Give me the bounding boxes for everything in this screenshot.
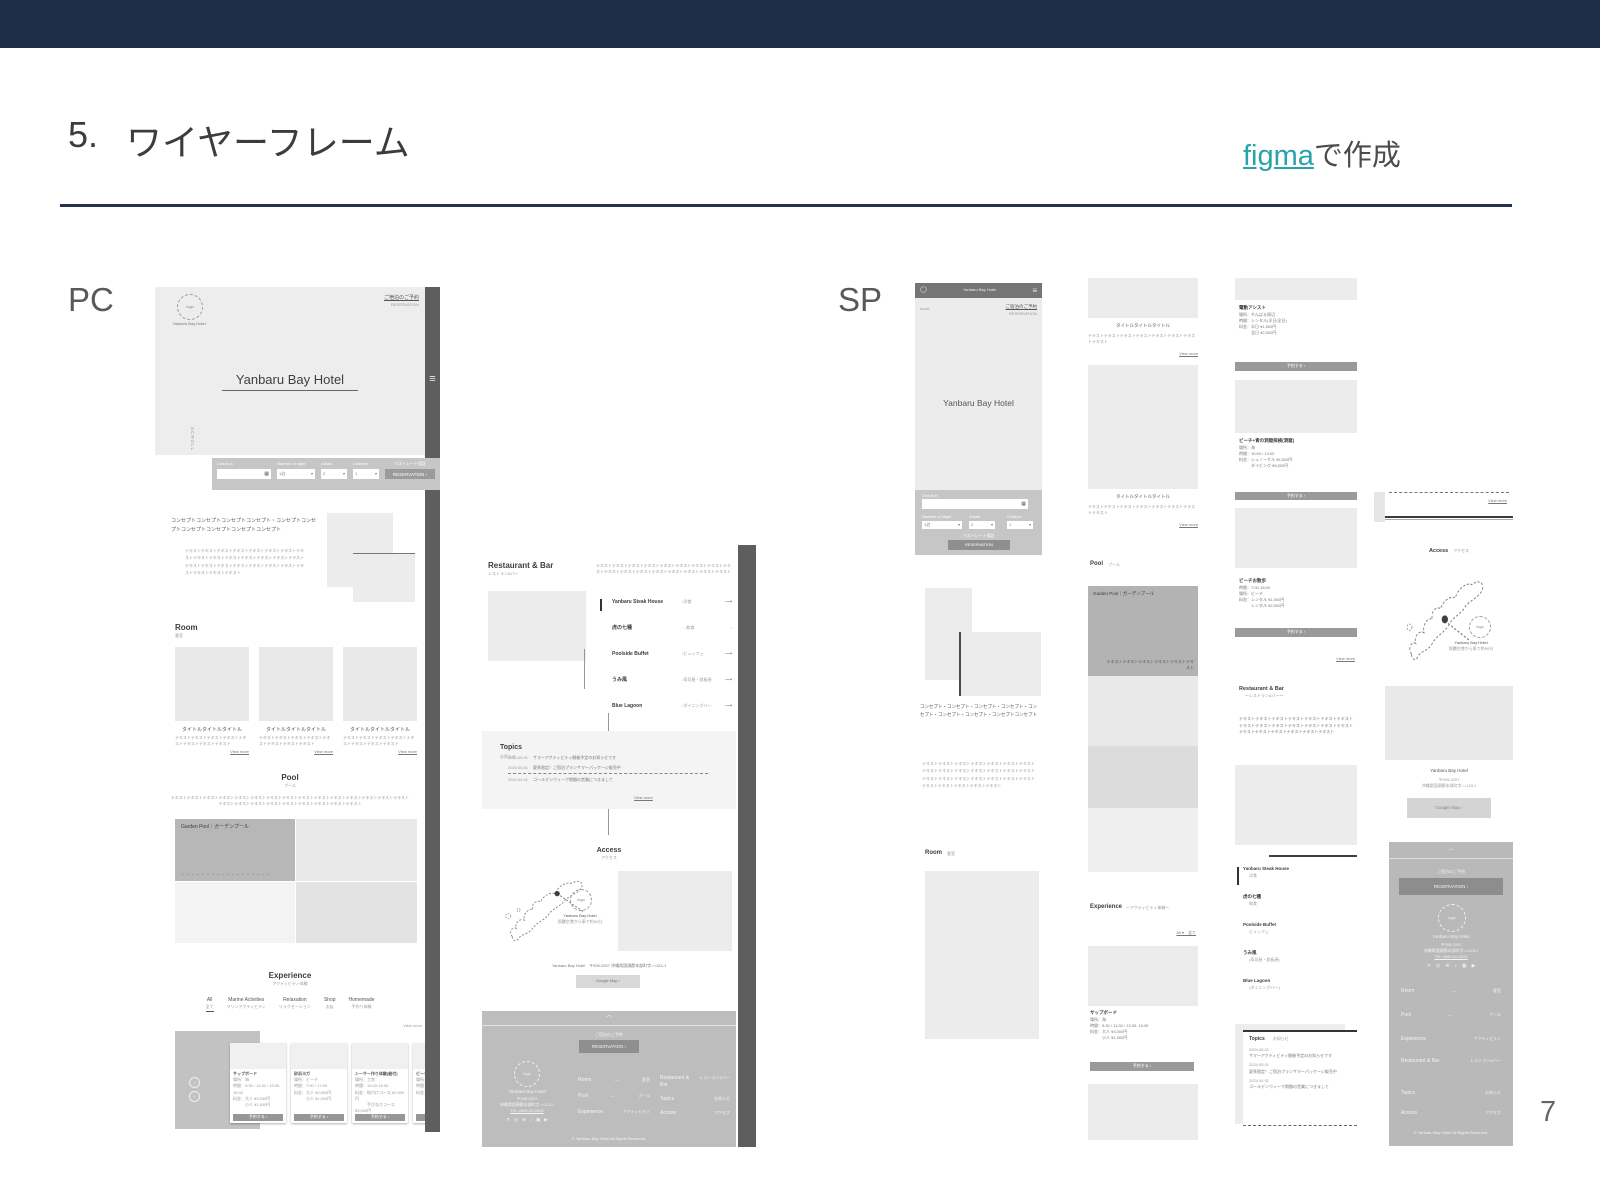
sp-card-title: サップボード [1090, 1010, 1196, 1017]
tab-shop[interactable]: Shop お店 [324, 997, 336, 1012]
experience-section-title: Experience アクティビティ体験 [155, 971, 425, 987]
map-logo-icon: logo [570, 889, 592, 911]
sp-restaurant-list-item[interactable]: うみ風 (寿司屋・鉄板焼) [1243, 950, 1355, 963]
hero-hotel-name-text: Yanbaru Bay Hotel [222, 372, 358, 391]
sp-footer-nav-en: Experience [1401, 1036, 1426, 1043]
sp-footer-nav-dash: — [1452, 988, 1456, 994]
hero-link-reserve[interactable]: ご宿泊のご予約 [384, 295, 419, 302]
access-title-ja: アクセス [480, 855, 738, 861]
pc-footer: ︿ ご宿泊のご予約 RESERVATION › logo Yanbaru Bay… [482, 1011, 736, 1147]
pc-hero: logo Yanbaru Bay Hotel ご宿泊のご予約 RESERVATI… [155, 287, 425, 455]
footer-nav-topics[interactable]: Topics お知らせ [660, 1096, 730, 1103]
sp-restaurant-section-title: Restaurant & Bar ～レストラン&バー～ [1239, 686, 1284, 699]
carousel-next-button[interactable]: › [189, 1077, 200, 1088]
room-card-image [259, 647, 333, 721]
footer-nav-ja: お知らせ [714, 1096, 730, 1102]
footer-hotel-name: Yanbaru Bay Hotel [490, 1089, 564, 1096]
pool-gallery: Garden Pool｜ガーデンプール ・・・・・・・・・・・・・・・・・・ [175, 819, 417, 943]
footer-nav-room[interactable]: Room — 客室 [578, 1077, 650, 1084]
caret-down-icon: ▾ [958, 522, 960, 528]
topics-item[interactable]: 2024.04.01 ゴールデンウィーク期間の営業につきまして [508, 777, 708, 783]
topics-band: Topics お知らせ 2024.05.01 サマーアクティビティ開催予定のお知… [482, 731, 736, 809]
reservation-button[interactable]: RESERVATION › [385, 469, 435, 479]
x-icon[interactable]: ✕ [1427, 963, 1431, 970]
adults-value: 2 [323, 471, 325, 477]
arrow-right-icon: ⟶ [725, 703, 732, 710]
prev-icon: ‹ [194, 1094, 196, 1100]
sp-reserve-button[interactable]: 予約する › [1235, 362, 1357, 371]
sp-card-title: 電動アシスト [1239, 305, 1353, 312]
sp-topics-item[interactable]: 2024.05.01 サマーアクティビティ開催予定のお知らせです [1243, 1043, 1357, 1059]
sp-reserve-button[interactable]: 予約する › [1235, 628, 1357, 637]
hero-hotel-name: Yanbaru Bay Hotel [155, 371, 425, 391]
tab-label-en: Relaxation [279, 997, 311, 1004]
pool-section-title: Pool プール [155, 773, 425, 789]
sp-restaurant-name: Yanbaru Steak House [1243, 866, 1355, 873]
sp-map-caption: Yanbaru Bay Hotel 那覇空港から車で約90分 [1431, 640, 1511, 652]
sp-access-title-ja: アクセス [1453, 548, 1469, 554]
checkin-input[interactable]: ▦ [217, 469, 271, 479]
experience-card[interactable]: 砂浜ヨガ 場所：ビーチ 時間：7:00 / 17:00 料金：大人 ¥2,000… [291, 1043, 347, 1123]
map-logo-icon: logo [1469, 616, 1491, 638]
sp-topics-text: 夏季限定！ご宿泊プランサマーパッケージ販売中 [1249, 1069, 1351, 1075]
credit-suffix: で作成 [1314, 140, 1401, 172]
okinawa-map-icon [498, 869, 600, 955]
instagram-icon[interactable]: ◎ [1436, 963, 1440, 970]
footer-nav-en: Room [578, 1077, 591, 1084]
experience-card-button[interactable]: 予約する › [294, 1114, 344, 1121]
restaurant-tick [600, 599, 602, 611]
sp-wireframe-col3: 電動アシスト 場所：やんばる周辺 時間：レンタル(半日/全日) 料金：半日 ¥1… [1235, 278, 1357, 1130]
sp-restaurant-title-ja: ～レストラン&バー～ [1245, 693, 1284, 699]
sp-experience-section-title: Experience ～アクティビティ体験～ [1090, 904, 1169, 912]
view-more-link[interactable]: View more [175, 749, 249, 755]
view-more-link[interactable]: View more [1088, 351, 1198, 357]
sp-topics-section-title: Topics お知らせ [1243, 1032, 1357, 1043]
tab-all[interactable]: All 全て [206, 997, 214, 1012]
topics-list: 2024.05.01 サマーアクティビティ開催予定のお知らせです 2024.05… [508, 755, 708, 784]
footer-nav-left: Room — 客室 Pool — プール Experience アクティビティ [578, 1077, 650, 1116]
sp-footer-tel[interactable]: TEL.0980-00-0000 [1389, 954, 1513, 960]
experience-view-more[interactable]: View more [403, 1023, 422, 1029]
footer-nav-experience[interactable]: Experience アクティビティ [578, 1109, 650, 1116]
view-more-link[interactable]: View more [1488, 498, 1507, 504]
tab-label-ja: マリンアクティビティ [227, 1004, 266, 1010]
adults-select[interactable]: 2 ▾ [321, 469, 347, 479]
sp-restaurant-name: 虎の七種 [1243, 894, 1355, 901]
experience-card[interactable]: サップボード 場所：海 時間：9:30 / 11:30 / 13:30, 15:… [230, 1043, 286, 1123]
line-icon[interactable]: ▣ [1462, 963, 1467, 970]
experience-tabs: All 全て Marine Activities マリンアクティビティ Rela… [155, 997, 425, 1012]
logo-text: logo [186, 304, 194, 310]
pool-gallery-garden: Garden Pool｜ガーデンプール ・・・・・・・・・・・・・・・・・・ [175, 819, 295, 881]
topics-text: 夏季限定！ご宿泊プランサマーパッケージ販売中 [533, 765, 621, 771]
sp-footer-socials: ✕ ◎ ⊕ ♪ ▣ ▶ [1389, 963, 1513, 970]
map-logo-text: logo [1476, 624, 1484, 630]
nights-value: 1泊 [279, 471, 285, 477]
topics-view-more[interactable]: View more [634, 795, 653, 801]
restaurant-list-row[interactable]: Poolside Buffet /ビュッフェ ⟶ [612, 651, 732, 658]
experience-card-image [230, 1043, 286, 1069]
pool-gallery-image [296, 819, 417, 881]
experience-title-en: Experience [155, 971, 425, 981]
footer-nav-ja: 客室 [642, 1077, 650, 1083]
sp-experience-image [1235, 508, 1357, 568]
sp-topics-title-ja: お知らせ [1273, 1036, 1289, 1042]
sp-footer-nav-ja: レストラン&バー [1470, 1058, 1501, 1064]
sp-pool-title-en: Pool [1090, 561, 1103, 569]
footer-divider [482, 1025, 736, 1026]
restaurant-list-row[interactable]: Blue Lagoon /ダイニングバー ⟶ [612, 703, 732, 710]
experience-card-button[interactable]: 予約する › [355, 1114, 405, 1121]
footer-reservation-button[interactable]: RESERVATION › [579, 1040, 639, 1053]
restaurant-category: /ビュッフェ [682, 651, 716, 657]
footer-tel[interactable]: TEL.0980-00-0000 [490, 1108, 564, 1114]
restaurant-section-title: Restaurant & Bar レストラン&バー [488, 561, 553, 577]
concept-image-2 [353, 553, 415, 602]
sp-restaurant-image [1235, 765, 1357, 845]
topics-text: サマーアクティビティ開催予定のお知らせです [533, 755, 616, 761]
restaurant-list-row[interactable]: Yanbaru Steak House /洋食 ⟶ [612, 599, 732, 606]
pool-gallery-image [175, 882, 295, 943]
sp-garden-pool-text: テキストテキストテキストテキストテキストテキスト [1106, 659, 1194, 671]
tab-label-ja: リラクゼーション [279, 1004, 311, 1010]
sp-card-line: ダイビング ¥5,500円 [1239, 463, 1353, 469]
booking-nights-group: Number of night 1泊 ▾ [277, 461, 315, 487]
sp-wireframe-col1: ◯ Yanbaru Bay Hotel ≡ scroll ご宿泊のご予約 RES… [915, 283, 1042, 1048]
sp-footer-nav-access[interactable]: Access アクセス [1401, 1110, 1501, 1117]
sp-pool-image [1088, 676, 1198, 746]
room-card-text: テキストテキストテキストテキストテキストテキストテキストテキスト [175, 735, 249, 747]
hero-links: ご宿泊のご予約 RESERVATION [384, 295, 419, 308]
section-divider-line [608, 713, 609, 731]
sp-restaurant-divider [1269, 855, 1357, 857]
map-logo-text: logo [577, 897, 585, 903]
sp-footer-nav-ja: 客室 [1493, 988, 1501, 994]
sp-concept-body: テキストテキストテキストテキストテキストテキストテキストテキストテキストテキスト… [922, 760, 1035, 790]
sp-restaurant-list-item[interactable]: 虎の七種 和食 [1243, 894, 1355, 907]
sp-footer-nav-topics[interactable]: Topics お知らせ [1401, 1090, 1501, 1097]
sp-map-note: 那覇空港から車で約90分 [1431, 646, 1511, 652]
sp-adults-select[interactable]: 2 ▾ [969, 521, 995, 529]
instagram-icon[interactable]: ◎ [514, 1117, 518, 1124]
sp-card-line: 小人 ¥1,500円 [1090, 1035, 1196, 1041]
next-icon: › [194, 1080, 196, 1086]
tiktok-icon[interactable]: ♪ [1454, 963, 1457, 970]
google-map-button[interactable]: Google Map › [576, 975, 640, 988]
sp-restaurant-list-item[interactable]: Blue Lagoon (ダイニングバー) [1243, 978, 1355, 991]
sp-footer-nav-ja: アクセス [1485, 1110, 1501, 1116]
sp-reserve-button[interactable]: 予約する › [1235, 492, 1357, 500]
sp-restaurant-category: (寿司屋・鉄板焼) [1249, 957, 1355, 963]
sp-footer-nav-ja: プール [1489, 1012, 1501, 1018]
restaurant-lead: テキストテキストテキストテキストテキストテキストテキストテキストテキストテキスト… [596, 563, 732, 576]
best-rate-note: ベストレート保証 [385, 461, 435, 467]
sp-experience-title-en: Experience [1090, 904, 1122, 912]
view-more-link[interactable]: View more [1088, 522, 1198, 528]
footer-nav-en: Restaurant & Bar [660, 1075, 698, 1089]
room-card-image [343, 647, 417, 721]
sp-footer-nav-room[interactable]: Room — 客室 [1401, 988, 1501, 995]
sp-card-line: レンタル ¥2,500円 [1239, 603, 1353, 609]
footer-nav-restaurant[interactable]: Restaurant & Bar レストラン&バー [660, 1075, 730, 1089]
sp-footer-copyright: © Yanbaru Bay Hotel All Rights Reserved. [1389, 1130, 1513, 1136]
experience-card-button[interactable]: 予約する › [233, 1114, 283, 1121]
sp-pool-title-ja: プール [1108, 562, 1120, 568]
room-card-title: タイトルタイトルタイトル [259, 727, 333, 734]
calendar-icon[interactable]: ▦ [1021, 501, 1026, 508]
sp-hero-hotel-name: Yanbaru Bay Hotel [915, 398, 1042, 408]
sp-footer: ︿ ご宿泊のご予約 RESERVATION › logo Yanbaru Bay… [1389, 842, 1513, 1146]
experience-card-line: 時間：9:00-18:00 [416, 1083, 425, 1089]
tab-homemade[interactable]: Homemade 手作り体験 [349, 997, 375, 1012]
sp-restaurant-category: 洋食 [1249, 873, 1355, 879]
sp-partial-card: View more [1385, 470, 1513, 522]
map-caption: Yanbaru Bay Hotel 那覇空港から車で約90分 [542, 913, 618, 925]
sp-restaurant-list-item[interactable]: Yanbaru Steak House 洋食 [1243, 866, 1355, 879]
topics-dashed-divider [508, 773, 708, 774]
sp-restaurant-category: 和食 [1249, 901, 1355, 907]
caret-down-icon: ▾ [343, 471, 345, 477]
sp-access-address: 沖縄県国頭郡本部町字○○123-1 [1385, 783, 1513, 789]
sp-footer-nav-ja: アクティビティ [1474, 1036, 1501, 1042]
tab-relaxation[interactable]: Relaxation リラクゼーション [279, 997, 311, 1012]
calendar-icon[interactable]: ▦ [264, 471, 269, 478]
pc-wireframe-page1: ≡ logo Yanbaru Bay Hotel ご宿泊のご予約 RESERVA… [155, 287, 440, 1132]
footer-nav-en: Pool [578, 1093, 588, 1100]
footer-nav-pool[interactable]: Pool — プール [578, 1093, 650, 1100]
tab-label-en: All [206, 997, 214, 1004]
footer-nav-en: Topics [660, 1096, 674, 1103]
sp-footer-nav-ja: お知らせ [1485, 1090, 1501, 1096]
sp-footer-nav-experience[interactable]: Experience アクティビティ [1401, 1036, 1501, 1043]
sp-restaurant-name: Poolside Buffet [1243, 922, 1355, 929]
access-image [618, 871, 732, 951]
scroll-indicator: SCROLL [188, 427, 195, 451]
sp-footer-reservation-button[interactable]: RESERVATION › [1399, 878, 1503, 895]
footer-nav-dash: — [611, 1093, 615, 1099]
sp-footer-nav-dash: — [1448, 1012, 1452, 1018]
sp-footer-nav-pool[interactable]: Pool — プール [1401, 1012, 1501, 1019]
sp-access-title-en: Access [1429, 548, 1448, 555]
sp-experience-card-text: ビーチ+青の洞窟探検(洞窟) 場所：海 時間：10:00 / 13:00 料金：… [1239, 438, 1353, 470]
children-select[interactable]: 1 ▾ [353, 469, 379, 479]
sp-adults-group: Adults 2 ▾ [969, 514, 995, 529]
room-title-ja: 客室 [175, 633, 198, 639]
footer-brand: logo Yanbaru Bay Hotel 〒905-0207 沖縄県国頭郡本… [490, 1061, 564, 1124]
footer-socials: ✕ ◎ ⊕ ♪ ▣ ▶ [490, 1117, 564, 1124]
sp-booking-panel: Check-in ▦ Number of Night 1泊 ▾ Adults 2… [915, 490, 1042, 555]
footer-nav-en: Access [660, 1110, 676, 1117]
section-divider-line [608, 809, 609, 835]
carousel-prev-button[interactable]: ‹ [189, 1091, 200, 1102]
caret-down-icon: ▾ [1029, 522, 1031, 528]
restaurant-image [488, 591, 586, 661]
sp-header-title: Yanbaru Bay Hotel [963, 287, 996, 293]
footer-nav-ja: アクティビティ [623, 1109, 650, 1115]
experience-card-line: 小人 ¥2,000円 [416, 1096, 425, 1102]
sp-footer-nav-en: Access [1401, 1110, 1417, 1117]
sp-children-value: 1 [1009, 522, 1011, 528]
concept-title: コンセプトコンセプトコンセプトコンセプト・コンセプトコンセプトコンセプトコンセプ… [171, 517, 317, 534]
logo-caption: Yanbaru Bay Hotel [159, 321, 219, 327]
sp-wireframe-col2: タイトルタイトルタイトル テキストテキストテキストテキストテキストテキストテキス… [1088, 278, 1198, 1140]
sp-card-title: ビーチ+青の洞窟探検(洞窟) [1239, 438, 1353, 445]
booking-submit-group: ベストレート保証 RESERVATION › [385, 461, 435, 487]
footer-nav-access[interactable]: Access アクセス [660, 1110, 730, 1117]
footer-nav-ja: レストラン&バー [699, 1075, 730, 1081]
sp-restaurant-category: (ダイニングバー) [1249, 985, 1355, 991]
page-number: 7 [1540, 1096, 1556, 1129]
footer-logo-text: logo [523, 1071, 531, 1077]
sp-topics-item[interactable]: 2024.04.01 ゴールデンウィーク期間の営業につきまして [1243, 1075, 1357, 1090]
sp-footer-logo-text: logo [1448, 915, 1456, 921]
sp-hero-link-reservation[interactable]: RESERVATION [1006, 311, 1038, 317]
nights-select[interactable]: 1泊 ▾ [277, 469, 315, 479]
room-card-title: タイトルタイトルタイトル [175, 727, 249, 734]
garden-pool-dots: ・・・・・・・・・・・・・・・・・・ [181, 872, 271, 878]
sp-footer-nav-en: Room [1401, 988, 1414, 995]
sp-hero: scroll ご宿泊のご予約 RESERVATION Yanbaru Bay H… [915, 298, 1042, 490]
sp-nights-group: Number of Night 1泊 ▾ [922, 514, 962, 529]
experience-card-button[interactable]: 予約する › [416, 1114, 425, 1121]
restaurant-name: Yanbaru Steak House [612, 599, 674, 606]
hero-link-reservation[interactable]: RESERVATION [384, 302, 419, 308]
sp-pool-section-title: Pool プール [1090, 561, 1120, 569]
pc-label: PC [68, 281, 114, 319]
line-icon[interactable]: ▣ [536, 1117, 540, 1124]
sp-restaurant-list-item[interactable]: Poolside Buffet ビュッフェ [1243, 922, 1355, 935]
experience-card-image [291, 1043, 347, 1069]
view-more-link[interactable]: View more [343, 749, 417, 755]
youtube-icon[interactable]: ▶ [544, 1117, 547, 1124]
sp-checkin-input[interactable]: ▦ [922, 499, 1028, 509]
sp-nights-value: 1泊 [924, 522, 930, 528]
sp-footer-nav-restaurant[interactable]: Restaurant & Bar レストラン&バー [1401, 1058, 1501, 1065]
tab-label-ja: 手作り体験 [349, 1004, 375, 1010]
experience-card-line: 手びねりコース ¥3,500円 [355, 1102, 405, 1114]
figma-link[interactable]: figma [1243, 140, 1314, 172]
title-rule [60, 204, 1512, 207]
topics-item[interactable]: 2024.05.01 夏季限定！ご宿泊プランサマーパッケージ販売中 [508, 765, 708, 771]
sp-card-title: ビーチお散歩 [1239, 578, 1353, 585]
sp-card-image [1088, 278, 1198, 318]
sp-back-to-top-button[interactable]: ︿ [1389, 846, 1513, 853]
logo-icon: logo [177, 294, 203, 320]
caret-down-icon: ▾ [375, 471, 377, 477]
restaurant-category: /寿司屋・鉄板焼 [682, 677, 716, 683]
sp-footer-nav-en: Restaurant & Bar [1401, 1058, 1447, 1065]
experience-card-line: 小人 ¥1,500円 [233, 1102, 283, 1108]
sp-card-text: テキストテキストテキストテキストテキストテキストテキストテキスト [1088, 333, 1198, 345]
tab-marine-activities[interactable]: Marine Activities マリンアクティビティ [227, 997, 266, 1012]
sp-reserve-button[interactable]: 予約する › [1090, 1062, 1194, 1071]
sp-topics-item[interactable]: 2024.05.01 夏季限定！ご宿泊プランサマーパッケージ販売中 [1243, 1059, 1357, 1074]
experience-card-image [413, 1043, 425, 1069]
topics-item[interactable]: 2024.05.01 サマーアクティビティ開催予定のお知らせです [508, 755, 708, 761]
pc2-scrollbar[interactable] [738, 545, 756, 1147]
sp-card-bottom-line [1385, 516, 1513, 518]
children-value: 1 [355, 471, 357, 477]
facebook-icon[interactable]: ⊕ [1445, 963, 1449, 970]
sp-reservation-button[interactable]: RESERVATION [948, 540, 1010, 550]
restaurant-list-row[interactable]: うみ風 /寿司屋・鉄板焼 ⟶ [612, 677, 732, 684]
facebook-icon[interactable]: ⊕ [522, 1117, 526, 1124]
sp-wireframe-col4: View more Access アクセス logo Yanbaru Bay H… [1385, 470, 1513, 1150]
sp-footer-hotel-name: Yanbaru Bay Hotel [1389, 934, 1513, 941]
arrow-right-icon: ⟶ [725, 651, 732, 658]
arrow-right-icon: ⟶ [725, 677, 732, 684]
room-card-title: タイトルタイトルタイトル [343, 727, 417, 734]
sp-nights-label: Number of Night [922, 514, 962, 520]
sp-google-map-button[interactable]: Google Map › [1407, 798, 1491, 818]
experience-card[interactable]: シーサー作り体験(絵付) 場所：工房 時間：10:00-16:00 料金：絵付け… [352, 1043, 408, 1123]
sp-topics-text: ゴールデンウィーク期間の営業につきまして [1249, 1084, 1351, 1090]
nights-label: Number of night [277, 461, 315, 467]
sp-nights-select[interactable]: 1泊 ▾ [922, 521, 962, 529]
sp-room-image [925, 871, 1039, 1039]
pool-title-en: Pool [155, 773, 425, 783]
tiktok-icon[interactable]: ♪ [530, 1117, 532, 1124]
sp-restaurant-name: Blue Lagoon [1243, 978, 1355, 985]
sp-experience-filter[interactable]: All ▾ 全て [1096, 930, 1196, 936]
room-card-image [175, 647, 249, 721]
experience-card[interactable]: ビーチサウナ 場所：ビーチ 時間：9:00-18:00 料金：大人 ¥4,000… [413, 1043, 425, 1123]
tab-label-ja: お店 [324, 1004, 336, 1010]
sp-hero-links: ご宿泊のご予約 RESERVATION [1006, 304, 1038, 317]
pool-gallery-image [296, 882, 417, 943]
back-to-top-button[interactable]: ︿ [482, 1013, 736, 1021]
sp-garden-pool-panel: Garden Pool｜ガーデンプール テキストテキストテキストテキストテキスト… [1088, 586, 1198, 676]
sp-adults-label: Adults [969, 514, 995, 520]
adults-label: Adults [321, 461, 347, 467]
sp-children-select[interactable]: 1 ▾ [1007, 521, 1033, 529]
top-bar [0, 0, 1600, 48]
sp-best-rate-note: ベストレート保証 [915, 533, 1042, 539]
footer-nav-dash: — [615, 1077, 619, 1083]
pool-title-ja: プール [155, 783, 425, 789]
pc1-scrollbar[interactable] [425, 287, 440, 1132]
sp-hamburger-icon[interactable]: ≡ [1032, 286, 1037, 295]
pc-booking-bar: Check-in ▦ Number of night 1泊 ▾ Adults 2… [212, 458, 440, 490]
sp-concept-title: コンセプト・コンセプト・コンセプト・コンセプト・コンセプト・コンセプト・コンセプ… [918, 703, 1039, 718]
restaurant-name: Poolside Buffet [612, 651, 674, 658]
page-title: 5. ワイヤーフレーム [68, 114, 410, 166]
sp-experience-card-text: 電動アシスト 場所：やんばる周辺 時間：レンタル(半日/全日) 料金：半日 ¥1… [1239, 305, 1353, 337]
sp-hero-link-reserve[interactable]: ご宿泊のご予約 [1006, 304, 1038, 311]
view-more-link[interactable]: View more [259, 749, 333, 755]
sp-pool-image [1088, 808, 1198, 872]
view-more-link[interactable]: View more [1255, 656, 1355, 662]
room-section-title: Room 客室 [175, 623, 198, 639]
sp-card-title: タイトルタイトルタイトル [1088, 323, 1198, 330]
experience-carousel: › ‹ サップボード 場所：海 時間：9:30 / 11:30 / 13:30,… [155, 1031, 425, 1132]
x-icon[interactable]: ✕ [506, 1117, 510, 1124]
sp-concept-image-2 [959, 632, 1041, 696]
access-section-title: Access アクセス [480, 847, 738, 862]
room-card-text: テキストテキストテキストテキストテキストテキストテキストテキスト [343, 735, 417, 747]
menu-hamburger-icon[interactable]: ≡ [425, 373, 440, 385]
sp-room-section-title: Room 客室 [925, 850, 955, 858]
sp-children-label: Children [1007, 514, 1033, 520]
sp-restaurant-category: ビュッフェ [1249, 929, 1355, 935]
sp-header-bar: ◯ Yanbaru Bay Hotel ≡ [915, 283, 1042, 298]
youtube-icon[interactable]: ▶ [1472, 963, 1476, 970]
footer-nav-right: Restaurant & Bar レストラン&バー Topics お知らせ Ac… [660, 1075, 730, 1117]
restaurant-list-row[interactable]: 虎の七種 /和食 › [612, 625, 732, 632]
pool-lead: テキストテキストテキストテキストテキストテキストテキストテキストテキストテキスト… [170, 795, 410, 809]
sp-label: SP [838, 281, 882, 319]
